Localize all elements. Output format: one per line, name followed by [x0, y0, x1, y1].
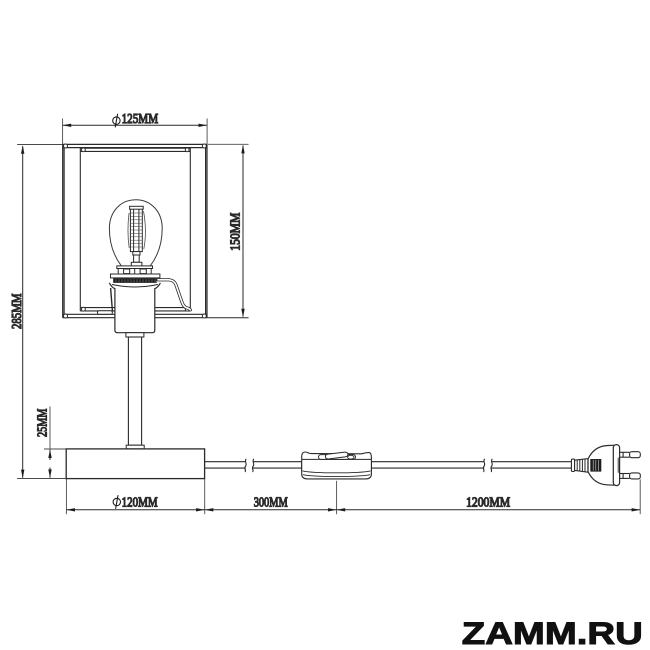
svg-text:1200MM: 1200MM: [466, 495, 510, 510]
svg-text:150MM: 150MM: [228, 212, 243, 250]
svg-text:120MM: 120MM: [122, 495, 158, 510]
svg-text:285MM: 285MM: [10, 293, 25, 329]
svg-text:125MM: 125MM: [122, 112, 159, 127]
svg-text:300MM: 300MM: [254, 495, 288, 510]
svg-text:ZAMM.RU: ZAMM.RU: [462, 615, 643, 650]
svg-text:25MM: 25MM: [36, 408, 51, 437]
